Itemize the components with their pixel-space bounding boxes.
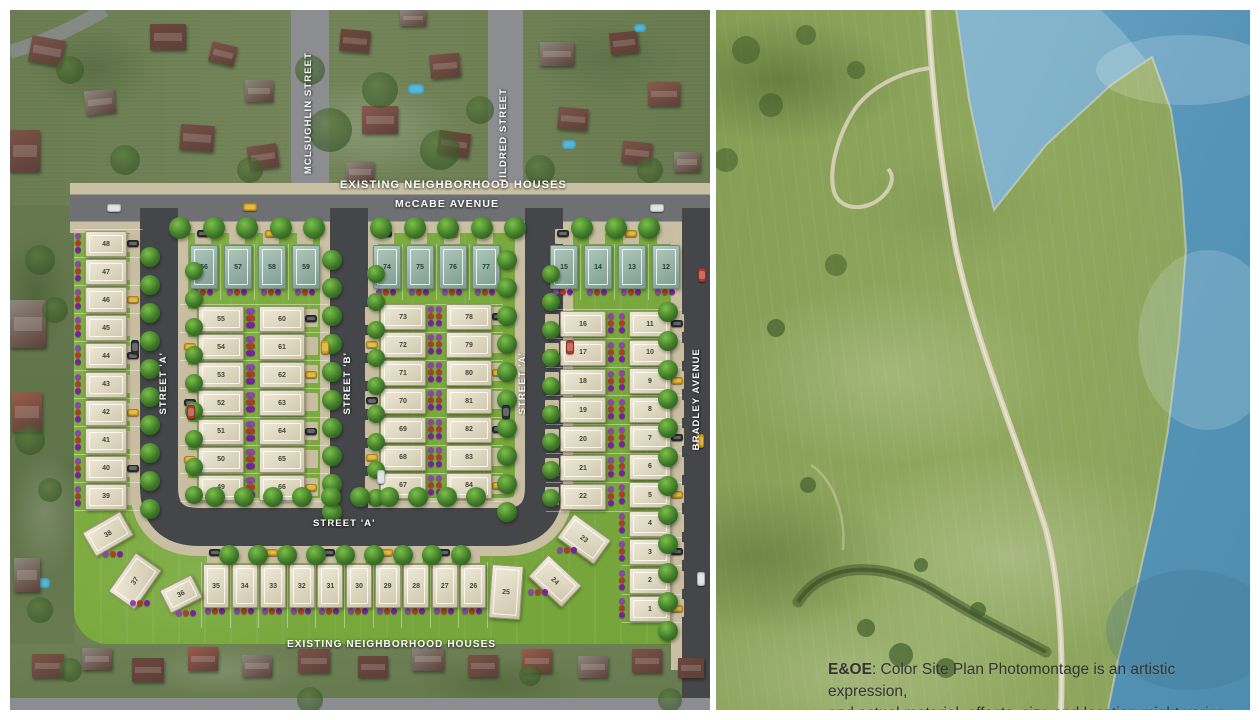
shrub: [619, 377, 625, 383]
lot-12: 12: [652, 245, 680, 289]
car: [321, 340, 329, 354]
driveway: [126, 375, 140, 393]
shrub: [268, 289, 274, 295]
lot-60: 60: [259, 306, 305, 332]
car: [131, 340, 139, 354]
shrub: [655, 289, 661, 295]
shrub: [75, 324, 81, 330]
shrub: [619, 413, 625, 419]
tree: [497, 474, 517, 494]
property-line: [287, 562, 288, 628]
car: [557, 230, 569, 237]
shrub: [428, 313, 434, 319]
shrub: [75, 331, 81, 337]
existing-house: [82, 648, 112, 670]
existing-house: [578, 656, 608, 678]
tree: [236, 217, 258, 239]
lot-57: 57: [224, 245, 252, 289]
tree-canopy: [237, 157, 263, 183]
property-line: [74, 510, 143, 511]
tree: [322, 362, 342, 382]
shrub: [423, 289, 429, 295]
tree: [542, 349, 560, 367]
shrub: [449, 289, 455, 295]
lot-61: 61: [259, 334, 305, 360]
shrub: [619, 399, 625, 405]
lot-83: 83: [446, 445, 492, 471]
shrub: [619, 513, 625, 519]
existing-houses-bottom-label: EXISTING NEIGHBORHOOD HOUSES: [287, 639, 496, 650]
shrub: [475, 289, 481, 295]
existing-house: [429, 53, 461, 80]
shrub: [436, 404, 442, 410]
shrub: [219, 608, 225, 614]
existing-house: [540, 42, 574, 66]
shrub: [428, 320, 434, 326]
shrub: [619, 434, 625, 440]
property-line: [220, 244, 221, 300]
property-line: [180, 304, 328, 305]
tree: [185, 346, 203, 364]
car: [366, 397, 378, 404]
existing-house: [339, 29, 371, 54]
shrub: [75, 388, 81, 394]
shrub: [75, 402, 81, 408]
tree: [658, 389, 678, 409]
lot-19: 19: [560, 397, 606, 423]
tree: [451, 545, 471, 565]
lot-36: 36: [159, 574, 203, 614]
lot-81: 81: [446, 388, 492, 414]
car: [305, 371, 317, 378]
tree: [140, 275, 160, 295]
property-line: [580, 244, 581, 300]
shrub: [428, 475, 434, 481]
tree-canopy: [25, 245, 55, 275]
property-line: [74, 285, 143, 286]
tree: [321, 487, 341, 507]
shrub: [619, 342, 625, 348]
shrub: [619, 527, 625, 533]
shrub: [428, 426, 434, 432]
tree-canopy: [637, 157, 663, 183]
tree: [542, 293, 560, 311]
shrub: [75, 437, 81, 443]
shrub: [103, 551, 109, 557]
shrub: [75, 275, 81, 281]
lot-24: 24: [528, 554, 582, 607]
tree: [140, 387, 160, 407]
shrub: [662, 289, 668, 295]
tree: [658, 563, 678, 583]
shrub: [249, 336, 255, 342]
property-line: [74, 482, 143, 483]
shrub: [436, 433, 442, 439]
tree-canopy: [308, 108, 352, 152]
bay-water: [956, 10, 1146, 210]
disclaimer: E&OE: Color Site Plan Photomontage is an…: [828, 659, 1250, 710]
shrub: [249, 456, 255, 462]
shrub: [75, 289, 81, 295]
property-line: [401, 562, 402, 628]
car: [502, 405, 510, 419]
shrub: [75, 416, 81, 422]
car: [625, 230, 637, 237]
tree: [542, 461, 560, 479]
shrub: [489, 289, 495, 295]
tree: [140, 359, 160, 379]
shrub: [249, 435, 255, 441]
tree: [638, 217, 660, 239]
shrub: [249, 406, 255, 412]
lot-27: 27: [432, 564, 458, 608]
property-line: [315, 562, 316, 628]
lot-41: 41: [85, 428, 127, 454]
tree: [497, 362, 517, 382]
tree: [542, 265, 560, 283]
tree: [542, 405, 560, 423]
car: [366, 454, 378, 461]
existing-house: [648, 82, 680, 106]
existing-house: [678, 658, 704, 678]
tree-canopy: [466, 96, 494, 124]
shrub: [75, 352, 81, 358]
driveway: [304, 450, 318, 468]
property-line: [180, 360, 328, 361]
shrub: [75, 240, 81, 246]
existing-house: [188, 647, 218, 671]
shrub: [291, 608, 297, 614]
car: [305, 428, 317, 435]
property-line: [487, 562, 488, 628]
lot-69: 69: [380, 417, 426, 443]
shrub: [249, 350, 255, 356]
tree: [140, 303, 160, 323]
shrub: [75, 233, 81, 239]
shrub: [75, 493, 81, 499]
shrub: [608, 342, 614, 348]
shrub: [428, 461, 434, 467]
shrub: [448, 608, 454, 614]
shrub: [594, 289, 600, 295]
lot-35: 35: [203, 564, 229, 608]
shrub: [619, 541, 625, 547]
existing-houses-top-label: EXISTING NEIGHBORHOOD HOUSES: [340, 179, 567, 191]
tree: [658, 476, 678, 496]
shrub: [75, 261, 81, 267]
lot-55: 55: [198, 306, 244, 332]
bradley-avenue-label: BRADLEY AVENUE: [691, 348, 702, 450]
lot-82: 82: [446, 417, 492, 443]
property-line: [230, 562, 231, 628]
existing-house: [400, 10, 426, 26]
tree: [185, 458, 203, 476]
shrub: [564, 547, 570, 553]
shrub: [436, 334, 442, 340]
shrub: [295, 289, 301, 295]
tree: [185, 486, 203, 504]
shrub: [436, 362, 442, 368]
shrub: [608, 428, 614, 434]
tree: [367, 293, 385, 311]
disclaimer-line2: and actual material, effects, size and l…: [828, 705, 1229, 710]
property-line: [180, 332, 328, 333]
tree: [322, 446, 342, 466]
car: [127, 296, 139, 303]
existing-house: [298, 649, 330, 673]
tree: [422, 545, 442, 565]
property-line: [180, 388, 328, 389]
shrub: [436, 475, 442, 481]
shrub: [298, 608, 304, 614]
shrub: [377, 608, 383, 614]
shrub: [542, 589, 548, 595]
shrub: [436, 320, 442, 326]
shrub: [75, 409, 81, 415]
existing-house: [245, 80, 273, 102]
tree-canopy: [27, 597, 53, 623]
shrub: [428, 482, 434, 488]
shrub: [619, 349, 625, 355]
lot-21: 21: [560, 455, 606, 481]
shrub: [436, 447, 442, 453]
tree: [658, 505, 678, 525]
shrub: [560, 289, 566, 295]
tree: [658, 592, 678, 612]
shrub: [619, 463, 625, 469]
shrub: [130, 600, 136, 606]
shrub: [207, 289, 213, 295]
driveway: [126, 431, 140, 449]
street-a-south-label: STREET 'A': [313, 518, 376, 529]
shrub: [669, 289, 675, 295]
swimming-pool: [634, 24, 646, 32]
shrub: [434, 608, 440, 614]
tree-canopy: [15, 425, 45, 455]
tree: [658, 331, 678, 351]
tree: [658, 447, 678, 467]
property-line: [344, 562, 345, 628]
lot-28: 28: [403, 564, 429, 608]
tree: [140, 247, 160, 267]
lots-layer: 4847464544434241403955545352515049606162…: [10, 10, 710, 710]
shrub: [619, 577, 625, 583]
shrub: [428, 341, 434, 347]
shrub: [249, 343, 255, 349]
shrub: [608, 471, 614, 477]
shrub: [419, 608, 425, 614]
tree: [605, 217, 627, 239]
lot-25: 25: [488, 564, 524, 620]
lot-31: 31: [317, 564, 343, 608]
lot-64: 64: [259, 419, 305, 445]
tree: [658, 302, 678, 322]
tree: [303, 217, 325, 239]
tree-canopy: [56, 56, 84, 84]
car: [366, 341, 378, 348]
tree: [322, 418, 342, 438]
shrub: [75, 486, 81, 492]
shrub: [469, 608, 475, 614]
shrub: [383, 289, 389, 295]
shrub: [428, 433, 434, 439]
lot-34: 34: [232, 564, 258, 608]
tree-canopy: [658, 688, 682, 710]
lot-62: 62: [259, 362, 305, 388]
tree: [658, 621, 678, 641]
lot-58: 58: [258, 245, 286, 289]
shrub: [319, 608, 325, 614]
shrub: [571, 547, 577, 553]
tree: [140, 471, 160, 491]
tree-canopy: [519, 664, 541, 686]
shrub: [362, 608, 368, 614]
shrub: [428, 404, 434, 410]
existing-house: [10, 130, 40, 172]
street-b-label: STREET 'B': [342, 352, 353, 415]
existing-house: [179, 124, 215, 152]
shrub: [619, 491, 625, 497]
shrub: [619, 356, 625, 362]
existing-house: [412, 647, 444, 671]
shrub: [436, 461, 442, 467]
cloud-haze: [1138, 250, 1250, 430]
shrub: [619, 598, 625, 604]
car: [650, 204, 664, 212]
shrub: [333, 608, 339, 614]
shrub: [75, 381, 81, 387]
street-a-west-label: STREET 'A': [158, 352, 169, 415]
tree: [140, 499, 160, 519]
lot-30: 30: [346, 564, 372, 608]
shrub: [436, 306, 442, 312]
shrub: [428, 348, 434, 354]
tree: [370, 217, 392, 239]
existing-house: [468, 655, 498, 677]
tree: [277, 545, 297, 565]
existing-house: [132, 658, 164, 682]
shrub: [355, 608, 361, 614]
property-line: [373, 562, 374, 628]
shrub: [234, 608, 240, 614]
shrub: [348, 608, 354, 614]
lot-48: 48: [85, 231, 127, 257]
existing-house: [557, 107, 589, 132]
shrub: [249, 463, 255, 469]
shrub: [249, 399, 255, 405]
disclaimer-prefix: E&OE: [828, 661, 872, 678]
shrub: [635, 289, 641, 295]
property-line: [614, 244, 615, 300]
lot-18: 18: [560, 369, 606, 395]
lot-50: 50: [198, 447, 244, 473]
property-line: [180, 445, 328, 446]
tree: [185, 374, 203, 392]
existing-house: [362, 106, 398, 134]
car: [566, 340, 574, 354]
tree: [542, 433, 560, 451]
tree: [322, 278, 342, 298]
shrub: [249, 421, 255, 427]
shrub: [608, 413, 614, 419]
shrub: [608, 500, 614, 506]
shrub: [428, 334, 434, 340]
shrub: [75, 500, 81, 506]
tree: [140, 331, 160, 351]
lot-20: 20: [560, 426, 606, 452]
existing-house: [10, 300, 46, 348]
shrub: [608, 349, 614, 355]
shrub: [75, 430, 81, 436]
shrub: [476, 608, 482, 614]
tree: [497, 502, 517, 522]
lot-32: 32: [289, 564, 315, 608]
shrub: [608, 493, 614, 499]
car: [187, 405, 195, 419]
shrub: [608, 435, 614, 441]
shrub: [249, 308, 255, 314]
shrub: [441, 608, 447, 614]
street-a-east-label: STREET 'A': [517, 352, 528, 415]
shrub: [190, 610, 196, 616]
shrub: [442, 289, 448, 295]
shrub: [405, 608, 411, 614]
shrub: [619, 520, 625, 526]
lot-13: 13: [618, 245, 646, 289]
property-line: [648, 244, 649, 300]
shrub: [212, 608, 218, 614]
lot-53: 53: [198, 362, 244, 388]
shrub: [269, 608, 275, 614]
shrub: [619, 320, 625, 326]
aerial-photo-panel: E&OE: Color Site Plan Photomontage is an…: [716, 10, 1250, 710]
shrub: [249, 428, 255, 434]
shrub: [436, 397, 442, 403]
shrub: [249, 322, 255, 328]
shrub: [117, 551, 123, 557]
lot-65: 65: [259, 447, 305, 473]
tree: [497, 418, 517, 438]
existing-house: [674, 152, 700, 172]
shrub: [619, 384, 625, 390]
shrub: [391, 608, 397, 614]
tree: [367, 405, 385, 423]
shrub: [241, 608, 247, 614]
shrub: [608, 399, 614, 405]
shrub: [326, 608, 332, 614]
tree: [367, 321, 385, 339]
shrub: [621, 289, 627, 295]
tree-canopy: [110, 145, 140, 175]
shrub: [619, 570, 625, 576]
tree: [306, 545, 326, 565]
shrub: [428, 397, 434, 403]
tree: [185, 290, 203, 308]
tree: [367, 265, 385, 283]
car: [697, 572, 705, 586]
tree: [364, 545, 384, 565]
property-line: [74, 229, 143, 230]
shrub: [137, 600, 143, 606]
lot-73: 73: [380, 304, 426, 330]
shrub: [428, 489, 434, 495]
property-line: [469, 244, 470, 300]
shrub: [456, 289, 462, 295]
shrub: [619, 470, 625, 476]
shrub: [428, 454, 434, 460]
driveway: [126, 262, 140, 280]
shrub: [436, 419, 442, 425]
